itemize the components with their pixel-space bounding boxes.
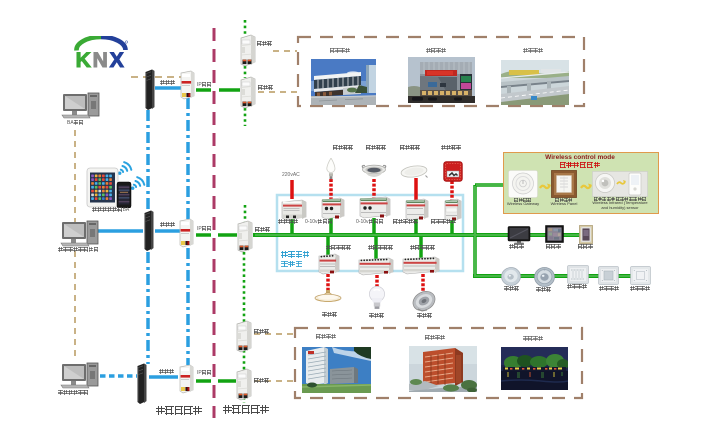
svg-text:X: X [110,49,124,70]
svg-text:K: K [76,49,91,70]
svg-text:N: N [93,49,108,70]
